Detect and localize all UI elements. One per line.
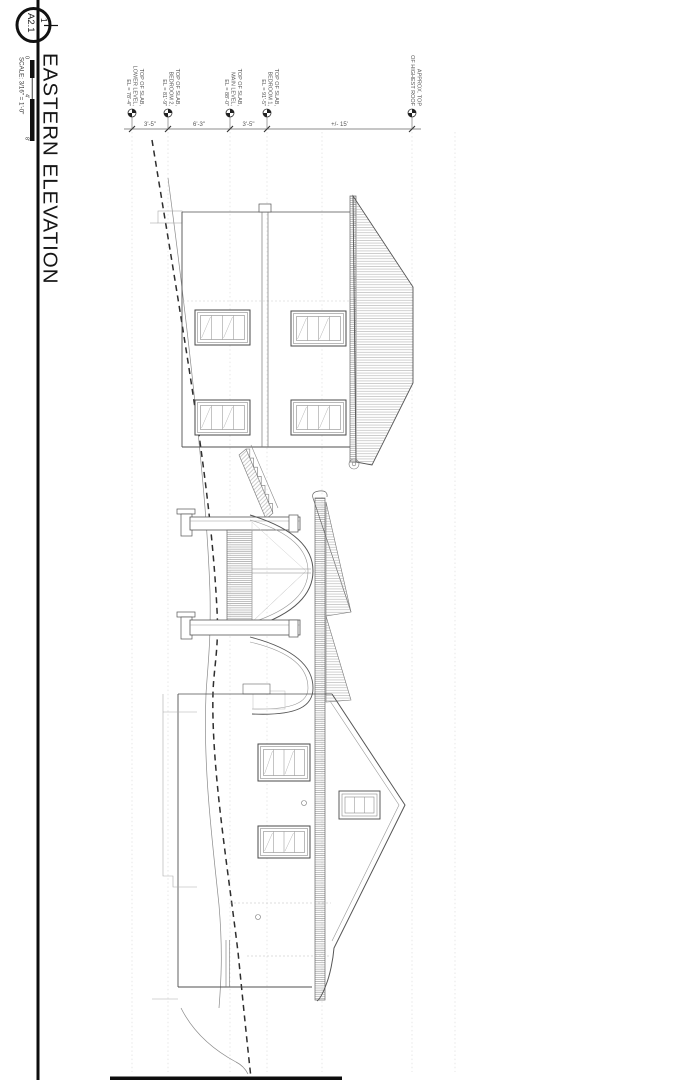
svg-text:EL = 88'-0": EL = 88'-0" bbox=[223, 79, 229, 106]
elevation-sheet: 3'-5" 6'-3" 3'-5" +/- 15' bbox=[0, 0, 693, 1080]
svg-text:MAIN LEVEL,: MAIN LEVEL, bbox=[230, 72, 236, 106]
bottom-border bbox=[110, 1077, 342, 1080]
window bbox=[195, 400, 250, 435]
svg-text:TOP OF SLAB,: TOP OF SLAB, bbox=[273, 69, 279, 107]
window bbox=[195, 310, 250, 345]
svg-text:LOWER LEVEL,: LOWER LEVEL, bbox=[132, 66, 138, 107]
paper-background bbox=[0, 0, 693, 1080]
svg-text:TOP OF SLAB,: TOP OF SLAB, bbox=[174, 69, 180, 107]
svg-text:OF HIGHEST ROOF: OF HIGHEST ROOF bbox=[409, 55, 415, 107]
svg-text:BEDROOM 1,: BEDROOM 1, bbox=[267, 71, 273, 106]
sheet-number: A2.1 bbox=[25, 13, 36, 33]
scale-tick: 4' bbox=[24, 94, 30, 98]
svg-text:EL = 78'-4": EL = 78'-4" bbox=[125, 79, 131, 106]
svg-text:TOP OF SLAB,: TOP OF SLAB, bbox=[138, 69, 144, 107]
dimension-value: 3'-5" bbox=[144, 122, 156, 128]
deck-beam bbox=[190, 517, 300, 530]
scale-tick: 8' bbox=[24, 137, 30, 141]
dimension-value: 3'-5" bbox=[243, 122, 255, 128]
long-fascia bbox=[315, 498, 325, 1000]
drawing-title: EASTERN ELEVATION bbox=[39, 53, 62, 285]
deck-post bbox=[289, 515, 298, 532]
dimension-value: +/- 15' bbox=[331, 122, 348, 128]
louver-band bbox=[227, 530, 252, 620]
svg-text:BEDROOM 2,: BEDROOM 2, bbox=[168, 71, 174, 106]
svg-text:APPROX. TOP: APPROX. TOP bbox=[416, 69, 422, 106]
tower-base bbox=[243, 684, 270, 694]
dimension-value: 6'-3" bbox=[193, 122, 205, 128]
deck-post bbox=[289, 620, 298, 637]
window bbox=[291, 311, 346, 346]
deck-beam bbox=[190, 620, 300, 635]
post-cap bbox=[177, 612, 195, 617]
window bbox=[291, 400, 346, 435]
svg-text:EL = 81'-9": EL = 81'-9" bbox=[161, 79, 167, 106]
scale-tick: 0 bbox=[24, 56, 30, 59]
svg-text:TOP OF SLAB,: TOP OF SLAB, bbox=[236, 69, 242, 107]
gable-window bbox=[339, 791, 380, 819]
svg-text:EL = 91'-5": EL = 91'-5" bbox=[260, 79, 266, 106]
window bbox=[258, 826, 310, 858]
window bbox=[258, 744, 310, 781]
detail-number: 1 bbox=[39, 18, 48, 23]
post-cap bbox=[177, 509, 195, 514]
scale-label: SCALE: 3/16" = 1'-0" bbox=[18, 57, 25, 114]
